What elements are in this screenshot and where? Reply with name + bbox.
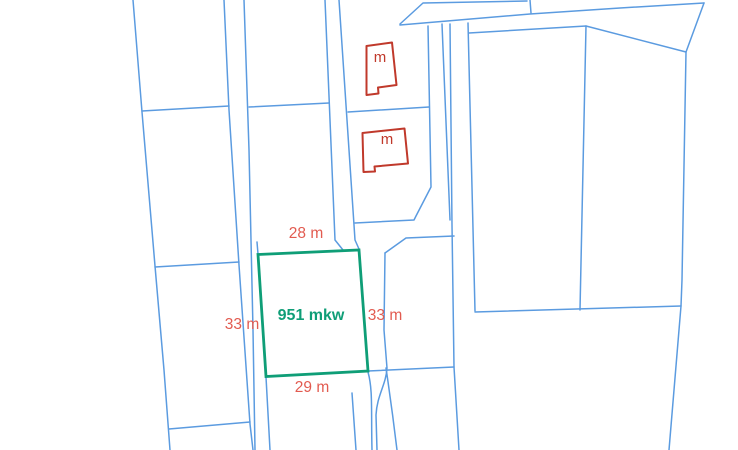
parcel-boundary-line xyxy=(142,106,229,111)
parcel-boundary-line xyxy=(530,0,531,13)
plot-area-label: 951 mkw xyxy=(278,307,345,324)
parcel-boundary-line xyxy=(368,372,372,450)
parcel-boundary-line xyxy=(386,368,397,450)
parcel-boundary-line xyxy=(400,3,704,25)
parcel-boundary-line xyxy=(257,242,258,254)
parcel-boundary-line xyxy=(348,107,429,112)
parcel-boundary-line xyxy=(580,26,586,310)
parcel-boundary-line xyxy=(325,0,343,250)
parcel-boundary-line xyxy=(155,262,239,267)
dimension-label: 33 m xyxy=(368,307,402,324)
parcel-boundary-line xyxy=(376,253,387,450)
dimension-label: 29 m xyxy=(295,379,329,396)
parcel-boundary-line xyxy=(133,0,170,450)
parcel-boundary-line xyxy=(339,0,359,249)
parcel-boundary-line xyxy=(469,26,686,52)
parcel-boundary-line xyxy=(244,0,255,450)
parcel-boundary-line xyxy=(368,367,454,371)
dimension-label: 28 m xyxy=(289,225,323,242)
parcel-boundary-line xyxy=(475,306,681,312)
parcel-boundary-line xyxy=(468,23,475,311)
parcel-boundary-line xyxy=(224,0,253,450)
parcel-boundary-line xyxy=(249,103,329,107)
building-label: m xyxy=(381,131,394,148)
parcel-boundary-line xyxy=(442,24,450,220)
parcel-boundary-line xyxy=(352,393,356,450)
map-canvas: 951 mkwmm28 m33 m33 m29 m xyxy=(0,0,738,450)
building-label: m xyxy=(374,49,387,66)
dimension-label: 33 m xyxy=(225,316,259,333)
parcel-boundary-line xyxy=(385,236,454,253)
cadastral-map: 951 mkwmm28 m33 m33 m29 m xyxy=(0,0,738,450)
parcel-boundary-line xyxy=(450,24,459,450)
parcel-boundary-line xyxy=(169,422,250,429)
parcel-boundary-line xyxy=(400,1,527,24)
parcel-boundary-line xyxy=(266,377,270,450)
parcel-boundary-line xyxy=(669,3,704,450)
